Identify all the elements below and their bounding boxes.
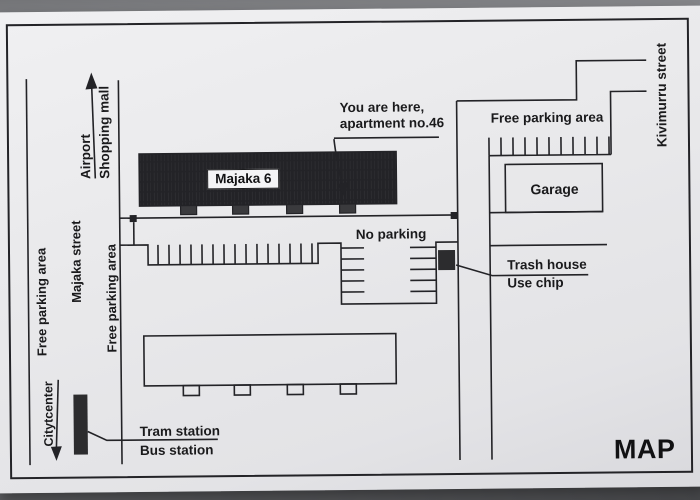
garage-south-line bbox=[490, 212, 603, 213]
shopping-mall-text: Shopping mall bbox=[94, 86, 114, 179]
free-parking-left-label: Free parking area bbox=[33, 248, 49, 357]
no-parking-label: No parking bbox=[356, 226, 427, 242]
bay-ticks-left bbox=[341, 248, 364, 292]
you-are-here-line2: apartment no.46 bbox=[340, 115, 444, 132]
citycenter-arrowhead-icon bbox=[51, 446, 62, 461]
you-are-here-line1: You are here, bbox=[340, 99, 444, 116]
east-connector-line bbox=[490, 245, 607, 246]
trash-house-label: Trash house Use chip bbox=[507, 256, 587, 293]
road-gate-marker-left bbox=[130, 215, 137, 222]
trash-house-line2: Use chip bbox=[507, 274, 587, 293]
central-parking-comb bbox=[158, 243, 312, 264]
trash-house-line1: Trash house bbox=[507, 256, 587, 275]
you-are-here-underline bbox=[334, 137, 439, 138]
you-are-here-label: You are here, apartment no.46 bbox=[340, 99, 445, 132]
bay-ticks-right bbox=[410, 247, 436, 291]
photo-background: Airport Shopping mall Majaka street Free… bbox=[0, 0, 700, 500]
kivimurru-street-label: Kivimurru street bbox=[654, 43, 670, 147]
kivimurru-entry-line bbox=[610, 91, 647, 154]
majaka6-label: Majaka 6 bbox=[207, 169, 279, 190]
tram-bus-station-label: Tram station Bus station bbox=[140, 421, 221, 460]
airport-text: Airport bbox=[75, 86, 95, 179]
airport-shopping-mall-label: Airport Shopping mall bbox=[75, 86, 114, 179]
lower-building bbox=[144, 334, 396, 386]
bus-station-text: Bus station bbox=[140, 440, 220, 460]
free-parking-center-label: Free parking area bbox=[103, 244, 119, 353]
tram-station-text: Tram station bbox=[140, 421, 220, 441]
map-scene: Airport Shopping mall Majaka street Free… bbox=[0, 0, 700, 500]
right-parking-comb bbox=[489, 136, 611, 155]
citycenter-direction-arrow bbox=[56, 380, 59, 449]
citycenter-label: Citytcenter bbox=[41, 381, 56, 446]
tram-bus-station-rect bbox=[73, 395, 88, 455]
east-road-lines bbox=[457, 101, 492, 460]
garage-label: Garage bbox=[530, 181, 578, 197]
majaka-street-label: Majaka street bbox=[68, 220, 84, 303]
road-gate-marker-right bbox=[451, 212, 458, 219]
right-parking-boundary bbox=[456, 60, 646, 101]
main-road-line bbox=[120, 215, 458, 218]
map-title: MAP bbox=[614, 434, 676, 466]
trash-house-square bbox=[438, 250, 455, 270]
free-parking-right-label: Free parking area bbox=[491, 110, 604, 126]
